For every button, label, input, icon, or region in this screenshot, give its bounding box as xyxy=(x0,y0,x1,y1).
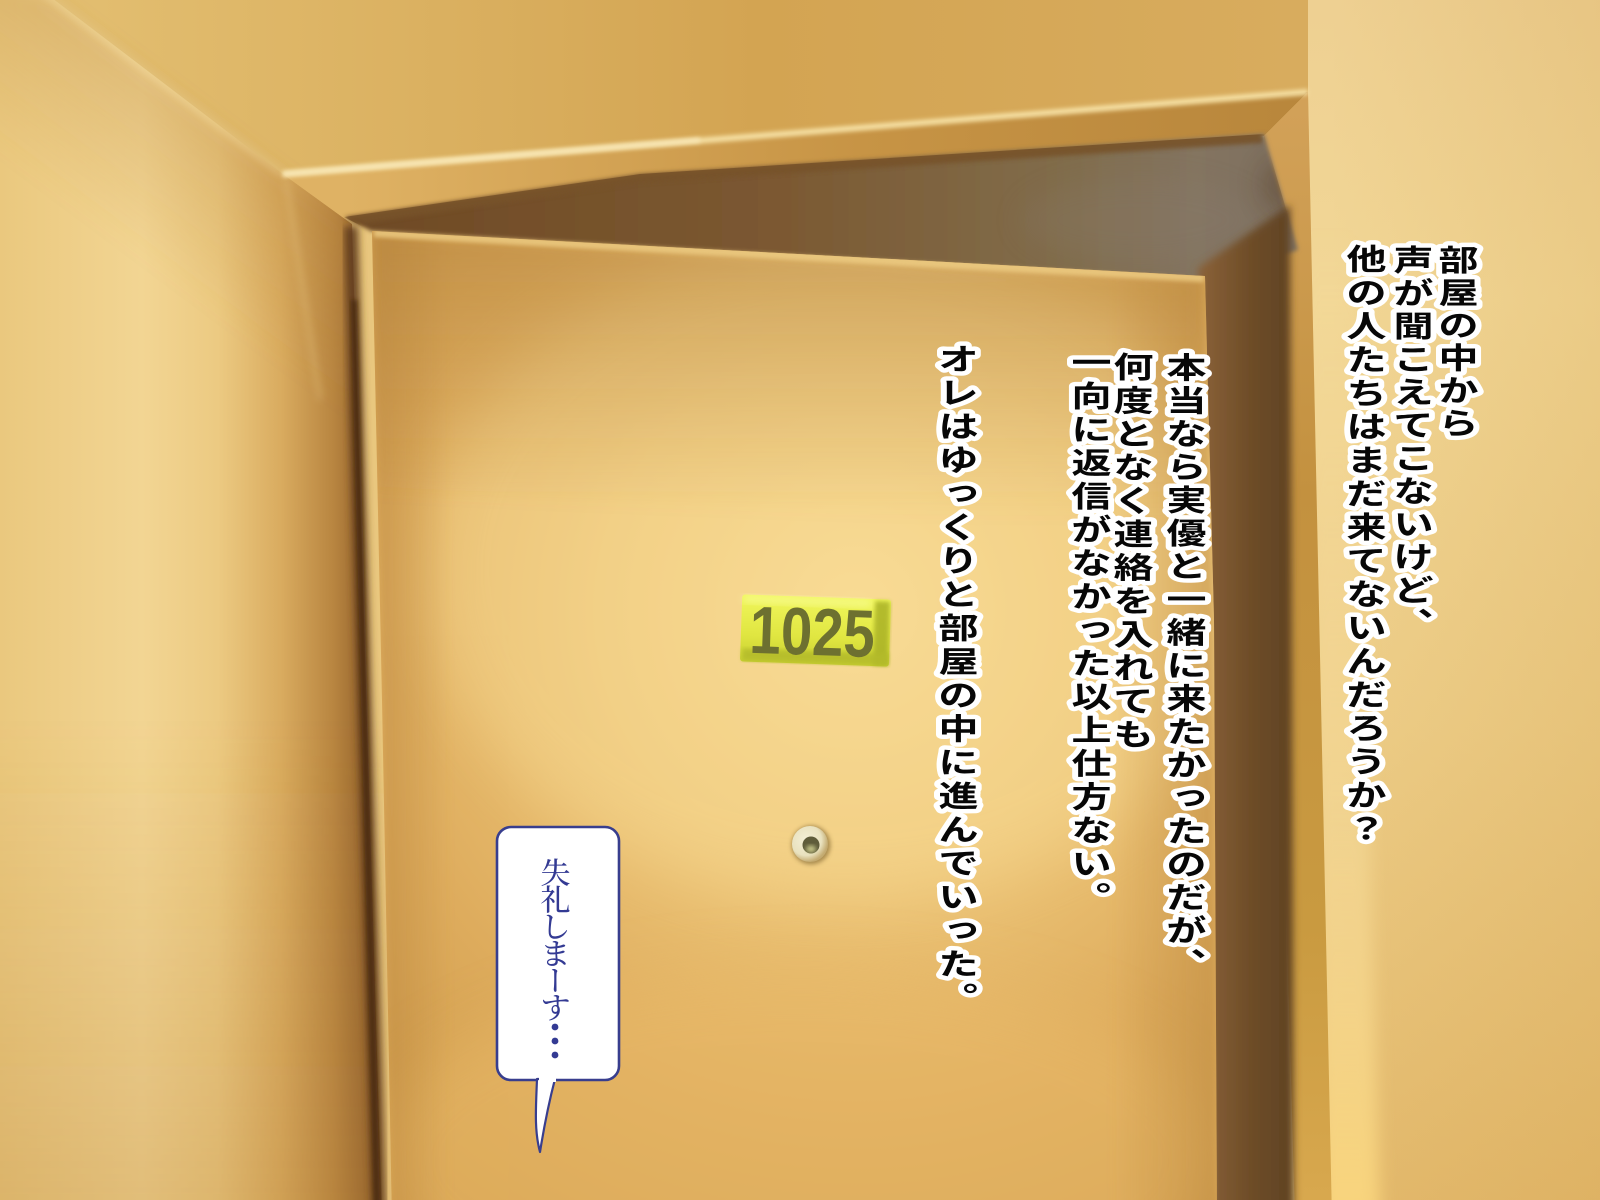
svg-text:1025: 1025 xyxy=(748,593,876,672)
